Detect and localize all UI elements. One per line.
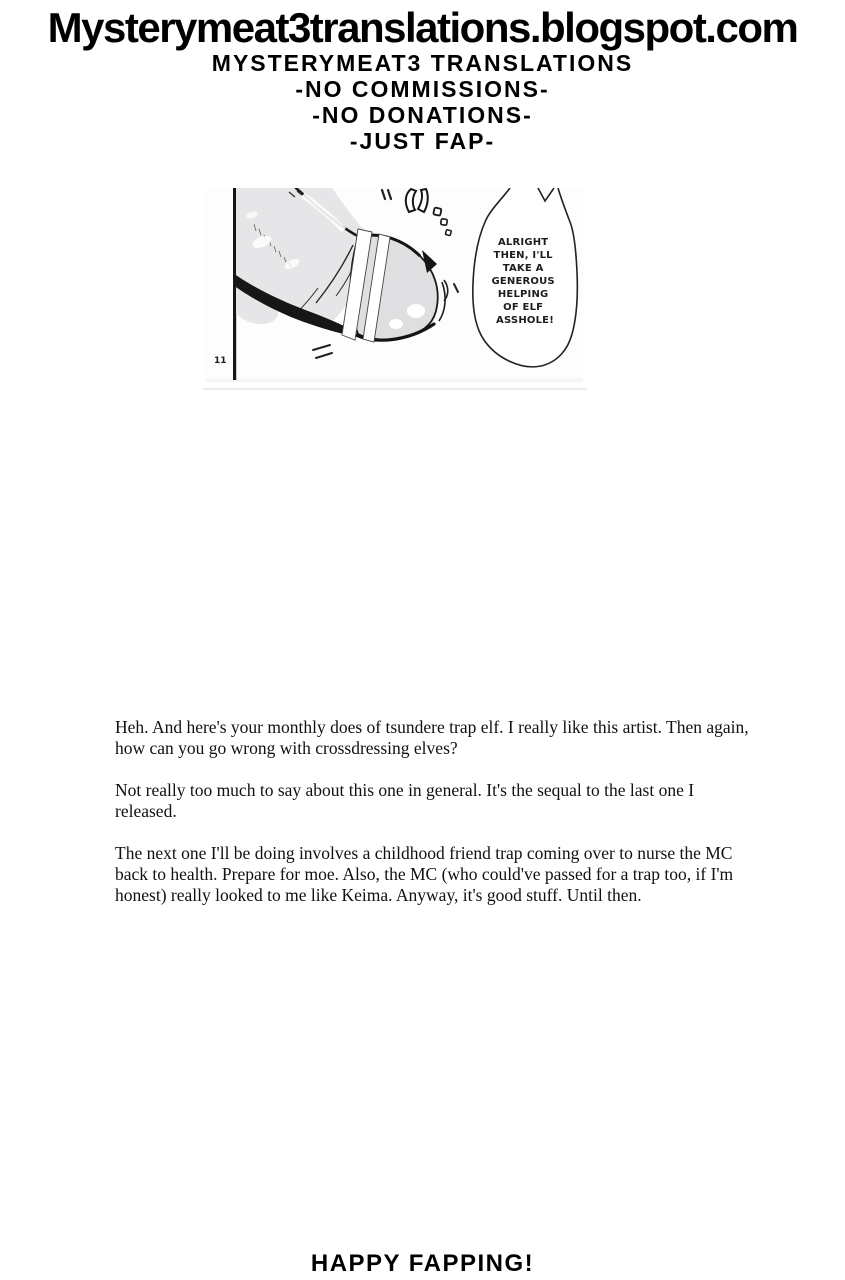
- release-notes: Heh. And here's your monthly does of tsu…: [115, 717, 756, 927]
- bubble-line: GENEROUS: [491, 276, 554, 287]
- credits-page: Mysterymeat3translations.blogspot.com MY…: [0, 0, 845, 1280]
- bubble-line: TAKE A: [503, 263, 544, 274]
- blog-url-title: Mysterymeat3translations.blogspot.com: [0, 6, 845, 50]
- manga-panel-image: ALRIGHT THEN, I'LL TAKE A GENEROUS HELPI…: [206, 188, 583, 382]
- bubble-line: ALRIGHT: [498, 237, 548, 248]
- bubble-line: ASSHOLE!: [496, 315, 554, 326]
- note-paragraph-3: The next one I'll be doing involves a ch…: [115, 843, 756, 906]
- policy-just-fap: -JUST FAP-: [0, 128, 845, 154]
- manga-panel-art: ALRIGHT THEN, I'LL TAKE A GENEROUS HELPI…: [206, 188, 583, 382]
- note-paragraph-1: Heh. And here's your monthly does of tsu…: [115, 717, 756, 759]
- bubble-line: HELPING: [498, 289, 549, 300]
- header: Mysterymeat3translations.blogspot.com MY…: [0, 6, 845, 154]
- bubble-line: OF ELF: [503, 302, 543, 313]
- group-name: MYSTERYMEAT3 TRANSLATIONS: [0, 50, 845, 76]
- scan-noise-strip: [206, 379, 583, 383]
- bubble-line: THEN, I'LL: [494, 250, 554, 261]
- footer-message: HAPPY FAPPING!: [0, 1250, 845, 1277]
- speech-bubble: ALRIGHT THEN, I'LL TAKE A GENEROUS HELPI…: [473, 188, 578, 367]
- note-paragraph-2: Not really too much to say about this on…: [115, 780, 756, 822]
- panel-page-number: 11: [214, 356, 227, 366]
- policy-no-commissions: -NO COMMISSIONS-: [0, 76, 845, 102]
- scan-artifact-line: [203, 388, 587, 390]
- policy-no-donations: -NO DONATIONS-: [0, 102, 845, 128]
